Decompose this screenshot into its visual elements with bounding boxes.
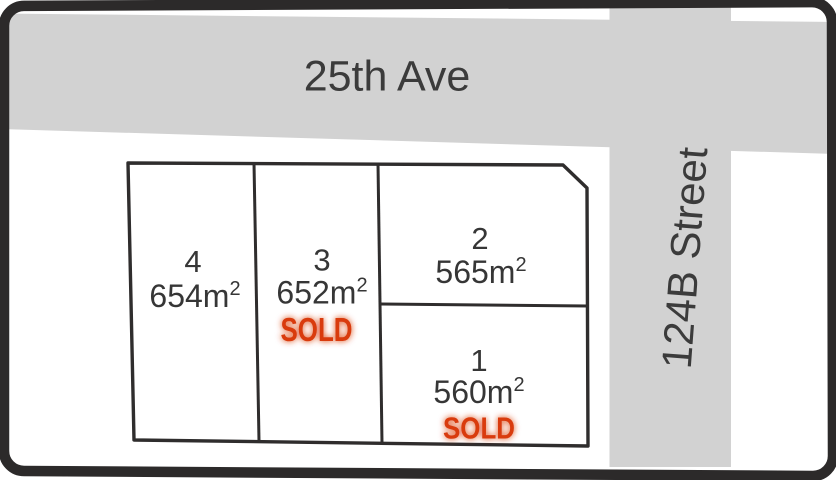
- svg-text:4: 4: [184, 244, 201, 279]
- svg-text:25th Ave: 25th Ave: [304, 53, 471, 101]
- svg-text:652m2: 652m2: [276, 275, 367, 311]
- svg-text:3: 3: [313, 243, 330, 278]
- svg-text:SOLD: SOLD: [281, 311, 353, 348]
- svg-text:2: 2: [471, 221, 488, 256]
- svg-text:560m2: 560m2: [433, 374, 524, 410]
- svg-text:SOLD: SOLD: [443, 411, 515, 446]
- svg-text:565m2: 565m2: [435, 254, 526, 290]
- svg-text:1: 1: [470, 343, 487, 378]
- svg-text:654m2: 654m2: [149, 278, 240, 314]
